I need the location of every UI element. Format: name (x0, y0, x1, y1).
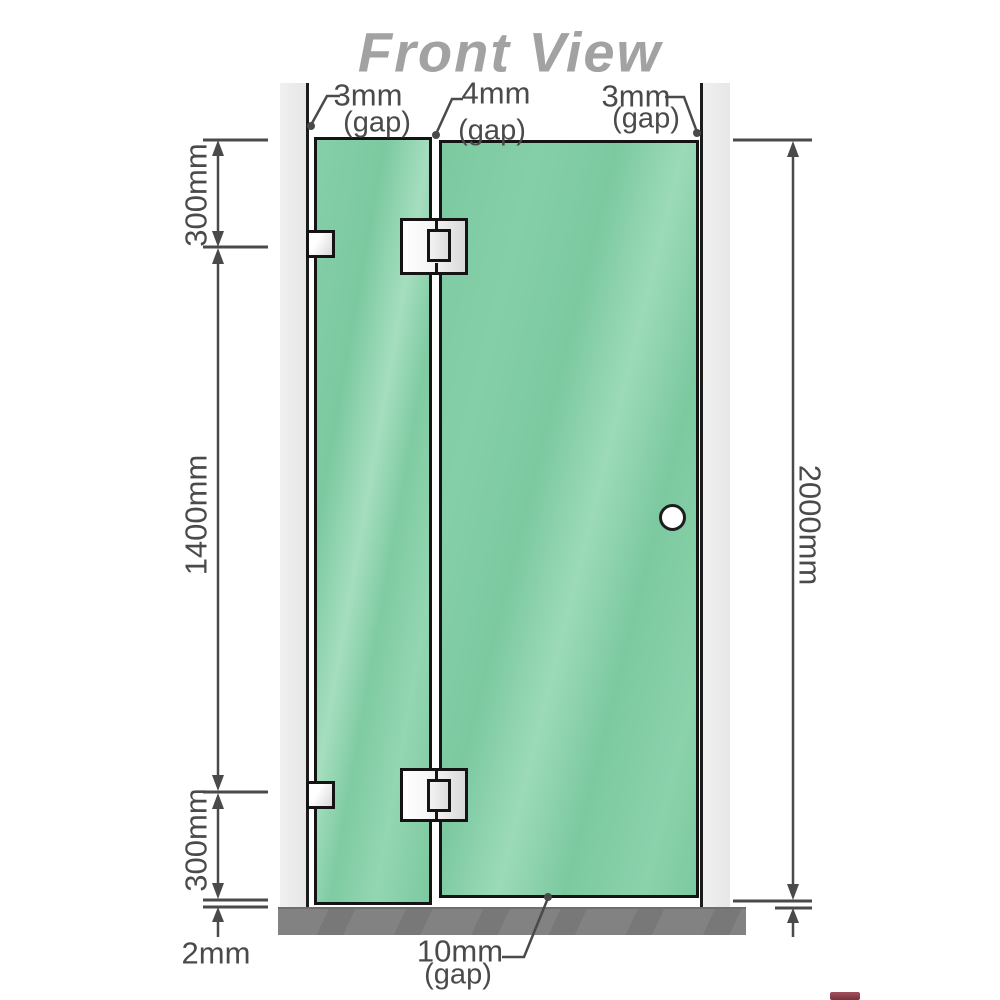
right-wall-channel (703, 83, 730, 907)
glass-hinge-top (400, 218, 468, 275)
hinge-knuckle (427, 229, 451, 262)
gap-note-top-middle: (gap) (458, 117, 526, 146)
hinge-gap-line-bottom (435, 263, 438, 272)
shower-screen-front-view-diagram: Front View (0, 0, 1000, 1000)
hinge-gap-line-bottom (435, 810, 438, 819)
wall-bracket-bottom (306, 781, 335, 809)
glass-hinge-bottom (400, 768, 468, 822)
floor-base (278, 907, 746, 935)
left-wall-channel (280, 83, 306, 907)
gap-note-top-right: (gap) (612, 105, 680, 134)
dimension-label-300mm-top: 300mm (181, 143, 212, 246)
gap-note-bottom: (gap) (424, 961, 492, 990)
dimension-label-1400mm: 1400mm (181, 455, 212, 576)
gap-label-top-middle: 4mm (462, 78, 531, 109)
logo-remnant (830, 992, 860, 1000)
door-handle-knob (659, 504, 686, 531)
floor-gap-label: 2mm (182, 938, 251, 969)
wall-bracket-top (306, 230, 335, 258)
gap-note-top-left: (gap) (343, 109, 411, 138)
hinge-knuckle (427, 779, 451, 812)
dimension-label-2000mm: 2000mm (795, 465, 826, 586)
dimension-label-300mm-bottom: 300mm (181, 788, 212, 891)
